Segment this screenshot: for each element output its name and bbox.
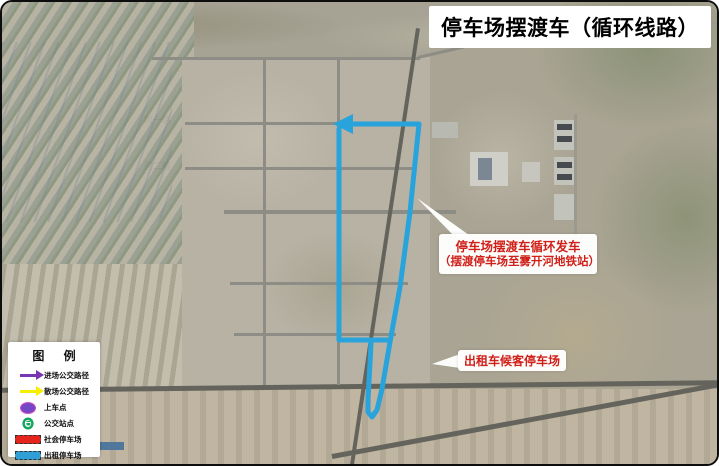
greenhouse-texture	[2, 42, 172, 222]
legend-icon-cell	[12, 416, 44, 431]
road	[185, 122, 417, 125]
taxi-parking-swatch	[15, 451, 41, 460]
legend-item: 公交站点	[12, 416, 96, 431]
annotation-line: （摆渡停车场至雾开河地铁站）	[439, 256, 597, 270]
road	[185, 167, 415, 170]
legend: 图 例 进场公交路径散场公交路径上车点公交站点社会停车场出租停车场	[8, 342, 100, 457]
road	[337, 59, 340, 385]
satellite-texture	[182, 57, 437, 387]
road	[224, 210, 456, 214]
legend-icon-cell	[12, 435, 44, 444]
legend-item-label: 公交站点	[44, 418, 74, 429]
legend-item: 进场公交路径	[12, 368, 96, 383]
legend-icon-cell	[12, 451, 44, 460]
bus-glyph	[26, 421, 30, 426]
legend-icon-cell	[12, 374, 44, 377]
legend-item-label: 散场公交路径	[44, 386, 89, 397]
building	[98, 442, 124, 450]
taxi-parking-annotation: 出租车候客停车场	[458, 350, 566, 371]
page-title: 停车场摆渡车（循环线路）	[429, 6, 711, 48]
building	[554, 194, 576, 220]
map-canvas: P1P2P3P4P5P6P7P8P9 雾一路开九街开十街丙一路丙二路雾二路雾三路…	[0, 0, 719, 466]
legend-item: 出租停车场	[12, 448, 96, 463]
legend-icon-cell	[12, 402, 44, 414]
building	[432, 122, 458, 138]
building	[522, 162, 540, 182]
legend-item: 散场公交路径	[12, 384, 96, 399]
boarding-point-icon	[20, 402, 36, 414]
purple-arrow-icon	[20, 374, 37, 377]
legend-item-label: 社会停车场	[44, 434, 82, 445]
building	[557, 174, 572, 180]
road	[263, 59, 266, 385]
public-parking-swatch	[15, 435, 41, 444]
bus-stop-icon	[22, 418, 33, 430]
legend-item: 上车点	[12, 400, 96, 415]
legend-item-label: 进场公交路径	[44, 370, 89, 381]
building	[557, 136, 572, 142]
legend-item: 社会停车场	[12, 432, 96, 447]
building	[557, 162, 572, 168]
road	[152, 57, 420, 60]
legend-title: 图 例	[12, 347, 96, 364]
legend-item-label: 上车点	[44, 402, 67, 413]
legend-rows: 进场公交路径散场公交路径上车点公交站点社会停车场出租停车场	[12, 368, 96, 463]
building	[478, 158, 492, 180]
annotation-line: 停车场摆渡车循环发车	[439, 238, 597, 256]
annotation-line: 出租车候客停车场	[458, 352, 566, 369]
legend-icon-cell	[12, 390, 44, 393]
shuttle-route-annotation: 停车场摆渡车循环发车 （摆渡停车场至雾开河地铁站）	[439, 234, 597, 274]
legend-item-label: 出租停车场	[44, 450, 82, 461]
building	[557, 124, 572, 130]
yellow-arrow-icon	[20, 390, 37, 393]
